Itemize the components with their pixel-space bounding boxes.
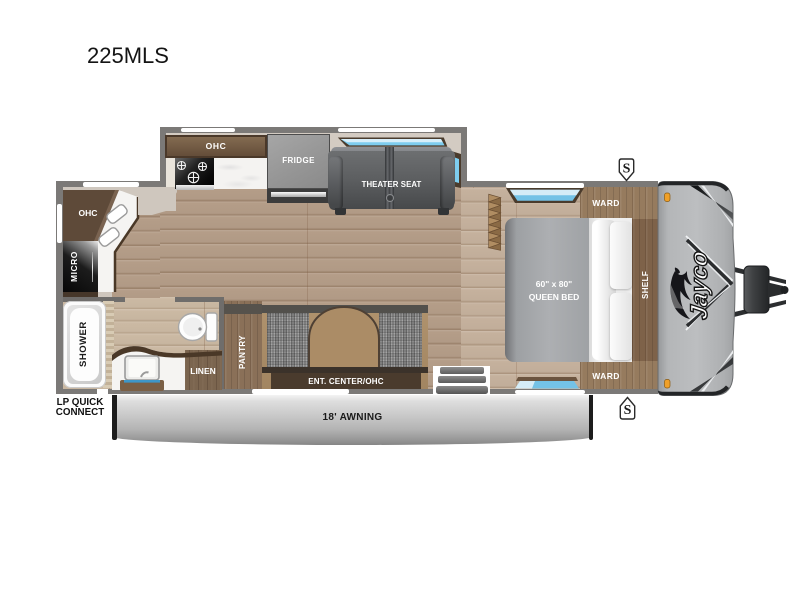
svg-text:S: S: [623, 162, 631, 177]
svg-text:Jayco: Jayco: [686, 249, 713, 321]
svg-text:S: S: [624, 403, 632, 418]
